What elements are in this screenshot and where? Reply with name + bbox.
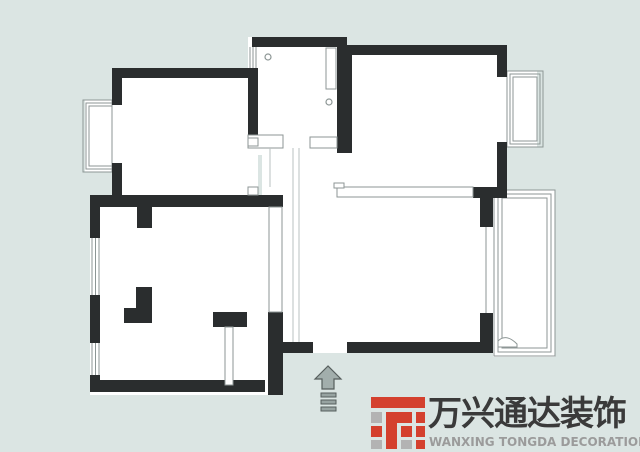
- wall: [268, 312, 283, 395]
- wall: [213, 312, 247, 327]
- thin-wall: [326, 48, 336, 89]
- wall: [124, 308, 152, 323]
- logo-block: [416, 426, 425, 437]
- logo-mark-icon: [371, 397, 425, 450]
- entry-step: [321, 393, 336, 397]
- logo-block: [371, 440, 382, 449]
- logo-block: [386, 412, 412, 423]
- thin-wall: [269, 207, 282, 312]
- thin-wall: [310, 137, 337, 148]
- thin-wall: [248, 138, 258, 146]
- logo-block: [416, 412, 425, 423]
- entry-arrow-icon: [315, 366, 341, 389]
- wall: [347, 342, 480, 353]
- wall: [497, 55, 507, 77]
- wall: [137, 207, 152, 228]
- wall: [248, 78, 258, 138]
- room-floor: [507, 71, 537, 147]
- wall: [343, 45, 507, 55]
- logo-block: [401, 426, 412, 437]
- wall: [480, 313, 493, 353]
- logo-block: [416, 440, 425, 449]
- entrance-arrow: [315, 366, 341, 411]
- logo-title: 万兴通达装饰: [428, 394, 621, 432]
- wall: [337, 47, 352, 153]
- logo-subtitle: WANXING TONGDA DECORATION: [429, 435, 621, 449]
- wall: [497, 142, 507, 192]
- room-floor: [112, 68, 258, 207]
- wall: [90, 195, 283, 207]
- wall: [112, 68, 258, 78]
- wall: [90, 295, 100, 343]
- logo-block: [371, 426, 382, 437]
- thin-wall: [248, 187, 258, 195]
- floor-plan-drawing: [0, 0, 640, 452]
- thin-wall: [225, 327, 233, 385]
- entry-step: [321, 407, 336, 411]
- fixture-circle: [265, 54, 271, 60]
- logo-block: [401, 440, 412, 449]
- logo-block: [371, 397, 425, 408]
- room-floor: [262, 135, 497, 353]
- floorplan-image: 万兴通达装饰 WANXING TONGDA DECORATION: [0, 0, 640, 452]
- wall: [136, 287, 152, 310]
- fixture-circle: [326, 99, 332, 105]
- wall: [112, 78, 122, 105]
- company-logo: 万兴通达装饰 WANXING TONGDA DECORATION: [371, 396, 621, 452]
- entry-step: [321, 400, 336, 404]
- logo-block: [371, 412, 382, 423]
- room-floor: [90, 195, 283, 395]
- thin-wall: [337, 187, 473, 197]
- wall: [473, 187, 507, 198]
- wall: [90, 207, 100, 238]
- wall: [480, 198, 493, 227]
- wall: [90, 380, 265, 392]
- wall: [283, 342, 313, 353]
- wall: [252, 37, 347, 47]
- thin-wall: [334, 183, 344, 188]
